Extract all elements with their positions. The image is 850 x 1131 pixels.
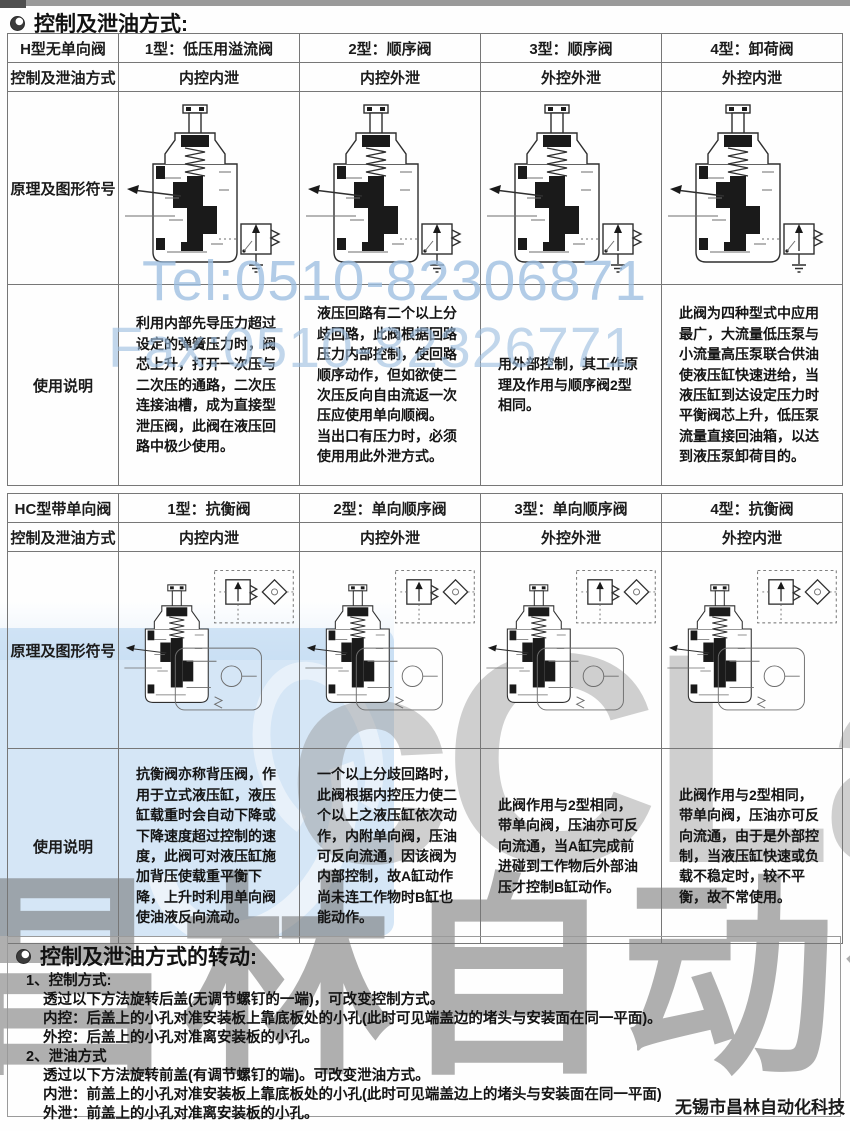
text-line: 透过以下方法旋转前盖(有调节螺钉的端)。可改变泄油方式。 [43,1067,662,1086]
type-header: 1型：低压用溢流阀 [119,34,300,63]
instruction-list: 1、控制方式: 透过以下方法旋转后盖(无调节螺钉的一端)，可改变控制方式。内控：… [26,972,662,1124]
mode-cell: 内控内泄 [119,523,300,552]
text-line: 内控：后盖上的小孔对准安装板上靠底板处的小孔(此时可见端盖边的堵头与安装面在同一… [43,1010,662,1029]
mode-cell: 内控外泄 [300,63,481,92]
type-header: 3型：顺序阀 [481,34,662,63]
diagram-cell [481,552,662,749]
type-header: 3型：单向顺序阀 [481,494,662,523]
valve-diagram [121,102,297,274]
usage-cell: 液压回路有二个以上分歧回路，此阀根据回路压力内部控制，使回路顺序动作，但如欲使二… [300,285,481,486]
corner-cell: H型无单向阀 [8,34,119,63]
row-label: 原理及图形符号 [8,92,119,285]
scan-edge-bar [0,0,850,6]
valve-diagram [664,562,840,738]
usage-cell: 此阀作用与2型相同，带单向阀，压油亦可反向流通，由于是外部控制，当液压缸快速或负… [662,749,843,944]
usage-text: 抗衡阀亦称背压阀，作用于立式液压缸，液压缸载重时会自动下降或下降速度超过控制的速… [121,760,297,932]
hc-type-table: HC型带单向阀 1型：抗衡阀 2型：单向顺序阀 3型：单向顺序阀 4型：抗衡阀 … [7,493,843,944]
list-item-2-heading: 2、泄油方式 [26,1048,662,1067]
corner-cell: HC型带单向阀 [8,494,119,523]
usage-cell: 抗衡阀亦称背压阀，作用于立式液压缸，液压缸载重时会自动下降或下降速度超过控制的速… [119,749,300,944]
text-line: 外泄：前盖上的小孔对准离安装板的小孔。 [43,1105,662,1124]
list-number: 2、 [26,1049,49,1065]
scan-edge-corner [0,0,26,8]
type-header: 4型：卸荷阀 [662,34,843,63]
table-row: 控制及泄油方式 内控内泄 内控外泄 外控外泄 外控内泄 [8,63,843,92]
list-title: 泄油方式 [49,1049,107,1065]
usage-text: 用外部控制，其工作原理及作用与顺序阀2型相同。 [483,350,659,419]
row-label: 使用说明 [8,749,119,944]
company-name: 无锡市昌林自动化科技 [675,1093,845,1118]
h-valve-cross-section-diagram [666,102,838,274]
text-line: 外控：后盖上的小孔对准离安装板的小孔。 [43,1029,662,1048]
diagram-cell [119,92,300,285]
section-bullet-icon [10,16,25,31]
usage-text: 此阀作用与2型相同，带单向阀，压油亦可反向流通，由于是外部控制，当液压缸快速或负… [664,781,840,912]
list-item-1-heading: 1、控制方式: [26,972,662,991]
valve-diagram [302,102,478,274]
mode-cell: 外控外泄 [481,523,662,552]
valve-diagram [483,562,659,738]
table-row: 使用说明 抗衡阀亦称背压阀，作用于立式液压缸，液压缸载重时会自动下降或下降速度超… [8,749,843,944]
mode-cell: 外控内泄 [662,63,843,92]
table-row: 原理及图形符号 [8,92,843,285]
hc-valve-cross-section-diagram [483,562,659,738]
h-type-table: H型无单向阀 1型：低压用溢流阀 2型：顺序阀 3型：顺序阀 4型：卸荷阀 控制… [7,33,843,486]
type-header: 4型：抗衡阀 [662,494,843,523]
table-row: H型无单向阀 1型：低压用溢流阀 2型：顺序阀 3型：顺序阀 4型：卸荷阀 [8,34,843,63]
section-title-text: 控制及泄油方式的转动: [40,941,257,971]
usage-text: 此阀作用与2型相同，带单向阀，压油亦可反向流通，当A缸完成前进碰到工作物后外部油… [483,791,659,901]
usage-cell: 一个以上分歧回路时，此阀根据内控压力使二个以上之液压缸依次动作，内附单向阀，压油… [300,749,481,944]
diagram-cell [119,552,300,749]
row-label: 原理及图形符号 [8,552,119,749]
usage-cell: 利用内部先导压力超过设定的弹簧压力时，阀芯上升，打开一次压与二次压的通路，二次压… [119,285,300,486]
mode-cell: 内控内泄 [119,63,300,92]
diagram-cell [662,92,843,285]
diagram-cell [481,92,662,285]
table-row: 使用说明 利用内部先导压力超过设定的弹簧压力时，阀芯上升，打开一次压与二次压的通… [8,285,843,486]
text-line: 透过以下方法旋转后盖(无调节螺钉的一端)，可改变控制方式。 [43,991,662,1010]
row-label: 使用说明 [8,285,119,486]
diagram-cell [300,92,481,285]
valve-diagram [302,562,478,738]
valve-diagram [664,102,840,274]
section-bullet-icon [16,949,31,964]
usage-text: 此阀为四种型式中应用最广，大流量低压泵与小流量高压泵联合供油使液压缸快速进给，当… [664,299,840,471]
section-title-rotation: 控制及泄油方式的转动: [16,941,257,971]
type-header: 2型：单向顺序阀 [300,494,481,523]
usage-text: 利用内部先导压力超过设定的弹簧压力时，阀芯上升，打开一次压与二次压的通路，二次压… [121,309,297,460]
usage-cell: 用外部控制，其工作原理及作用与顺序阀2型相同。 [481,285,662,486]
row-label: 控制及泄油方式 [8,63,119,92]
valve-diagram [121,562,297,738]
h-valve-cross-section-diagram [304,102,476,274]
list-item-1-lines: 透过以下方法旋转后盖(无调节螺钉的一端)，可改变控制方式。内控：后盖上的小孔对准… [43,991,662,1048]
list-title: 控制方式: [49,973,112,989]
mode-cell: 外控内泄 [662,523,843,552]
usage-text: 液压回路有二个以上分歧回路，此阀根据回路压力内部控制，使回路顺序动作，但如欲使二… [302,299,478,471]
h-valve-cross-section-diagram [485,102,657,274]
table-row: 原理及图形符号 [8,552,843,749]
mode-cell: 外控外泄 [481,63,662,92]
table-row: HC型带单向阀 1型：抗衡阀 2型：单向顺序阀 3型：单向顺序阀 4型：抗衡阀 [8,494,843,523]
text-line: 内泄：前盖上的小孔对准安装板上靠底板处的小孔(此时可见端盖边上的堵头与安装面在同… [43,1086,662,1105]
type-header: 1型：抗衡阀 [119,494,300,523]
hc-valve-cross-section-diagram [121,562,297,738]
valve-diagram [483,102,659,274]
hc-valve-cross-section-diagram [302,562,478,738]
list-item-2-lines: 透过以下方法旋转前盖(有调节螺钉的端)。可改变泄油方式。内泄：前盖上的小孔对准安… [43,1067,662,1124]
hc-valve-cross-section-diagram [664,562,840,738]
h-valve-cross-section-diagram [123,102,295,274]
usage-cell: 此阀作用与2型相同，带单向阀，压油亦可反向流通，当A缸完成前进碰到工作物后外部油… [481,749,662,944]
diagram-cell [300,552,481,749]
table-row: 控制及泄油方式 内控内泄 内控外泄 外控外泄 外控内泄 [8,523,843,552]
usage-cell: 此阀为四种型式中应用最广，大流量低压泵与小流量高压泵联合供油使液压缸快速进给，当… [662,285,843,486]
diagram-cell [662,552,843,749]
mode-cell: 内控外泄 [300,523,481,552]
type-header: 2型：顺序阀 [300,34,481,63]
list-number: 1、 [26,973,49,989]
usage-text: 一个以上分歧回路时，此阀根据内控压力使二个以上之液压缸依次动作，内附单向阀，压油… [302,760,478,932]
row-label: 控制及泄油方式 [8,523,119,552]
page-content: 控制及泄油方式: H型无单向阀 1型：低压用溢流阀 2型：顺序阀 3型：顺序阀 … [0,0,850,1131]
